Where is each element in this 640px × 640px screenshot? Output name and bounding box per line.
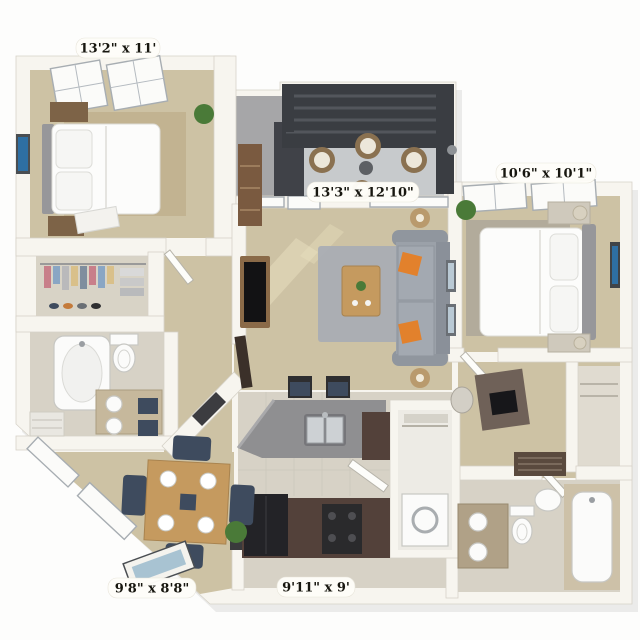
floor-plan-page: 13'2" x 11' 10'6" x 10'1" 13'3" x 12'10"…: [0, 0, 640, 640]
desk-chair[interactable]: [451, 387, 473, 413]
wall-bed1-bottom-left: [16, 238, 166, 256]
place-setting: [157, 515, 174, 532]
bed2-headboard: [582, 224, 596, 340]
pergola-side-right: [436, 84, 454, 194]
bathtub-2: [572, 492, 612, 582]
accent-pillow: [398, 320, 422, 344]
kitchen-sink: [304, 412, 346, 446]
bath-mat: [138, 420, 158, 436]
wall-bed1-bottom-right: [206, 238, 236, 256]
wall-bath1-right: [164, 332, 178, 444]
bath-mat: [138, 398, 158, 414]
bar-stool[interactable]: [326, 376, 350, 398]
bedroom1-plant: [194, 104, 214, 124]
louver-bench: [514, 452, 566, 476]
bar-stool[interactable]: [288, 376, 312, 398]
wall-hall2-closet: [566, 362, 578, 472]
bed2-pillow: [550, 286, 578, 332]
bed2-pillow: [550, 234, 578, 280]
bed1-pillow: [56, 172, 92, 210]
side-lamp: [410, 368, 430, 388]
tv-screen: [244, 262, 266, 322]
side-lamp: [410, 208, 430, 228]
pergola-side-left: [282, 84, 294, 132]
label-kitchen: 9'11" x 9': [282, 581, 350, 596]
table-centerpiece: [180, 494, 197, 511]
coffee-table: [342, 266, 380, 316]
monitor: [489, 390, 518, 415]
place-setting: [200, 473, 217, 490]
sink-1a: [106, 396, 122, 412]
pergola-finial: [447, 145, 457, 155]
patio-chair: [355, 133, 381, 159]
patio-chair: [401, 147, 427, 173]
dining-chair[interactable]: [229, 484, 255, 525]
wall-closet1-bottom: [16, 316, 164, 332]
desk-nook: [475, 369, 530, 431]
place-setting: [160, 471, 177, 488]
label-bedroom2: 10'6" x 10'1": [500, 167, 593, 182]
sink-2a: [469, 513, 487, 531]
dining-chair[interactable]: [172, 435, 211, 461]
label-bedroom1: 13'2" x 11': [80, 42, 157, 57]
closet-shelf-stack: [120, 268, 144, 296]
patio-chair: [309, 147, 335, 173]
tv-console: [240, 256, 270, 328]
label-living-room: 13'3" x 12'10": [312, 186, 414, 201]
sink-1b: [106, 418, 122, 434]
linen-shelves: [30, 412, 64, 436]
toilet-2: [510, 506, 534, 544]
wall-bath2-top-b: [576, 466, 632, 480]
place-setting: [197, 517, 214, 534]
label-dining-room: 9'8" x 8'8": [115, 582, 190, 597]
range-stove: [322, 504, 362, 554]
floor-plan-canvas: 13'2" x 11' 10'6" x 10'1" 13'3" x 12'10"…: [0, 0, 640, 640]
dining-chair[interactable]: [121, 475, 147, 516]
nightstand-lamp: [574, 337, 586, 349]
patio-table: [359, 161, 373, 175]
corner-cabinet: [362, 412, 390, 460]
bedroom2-plant: [456, 200, 476, 220]
entry-shelf-unit: [238, 144, 262, 226]
washer-dryer: [402, 494, 448, 546]
pedestal-sink: [535, 489, 561, 511]
bed1-nightstand-top: [50, 102, 88, 122]
nightstand-lamp: [573, 206, 587, 220]
sofa: [392, 230, 450, 366]
sink-2b: [469, 543, 487, 561]
bed1-pillow: [56, 130, 92, 168]
closet2-floor: [576, 366, 620, 472]
